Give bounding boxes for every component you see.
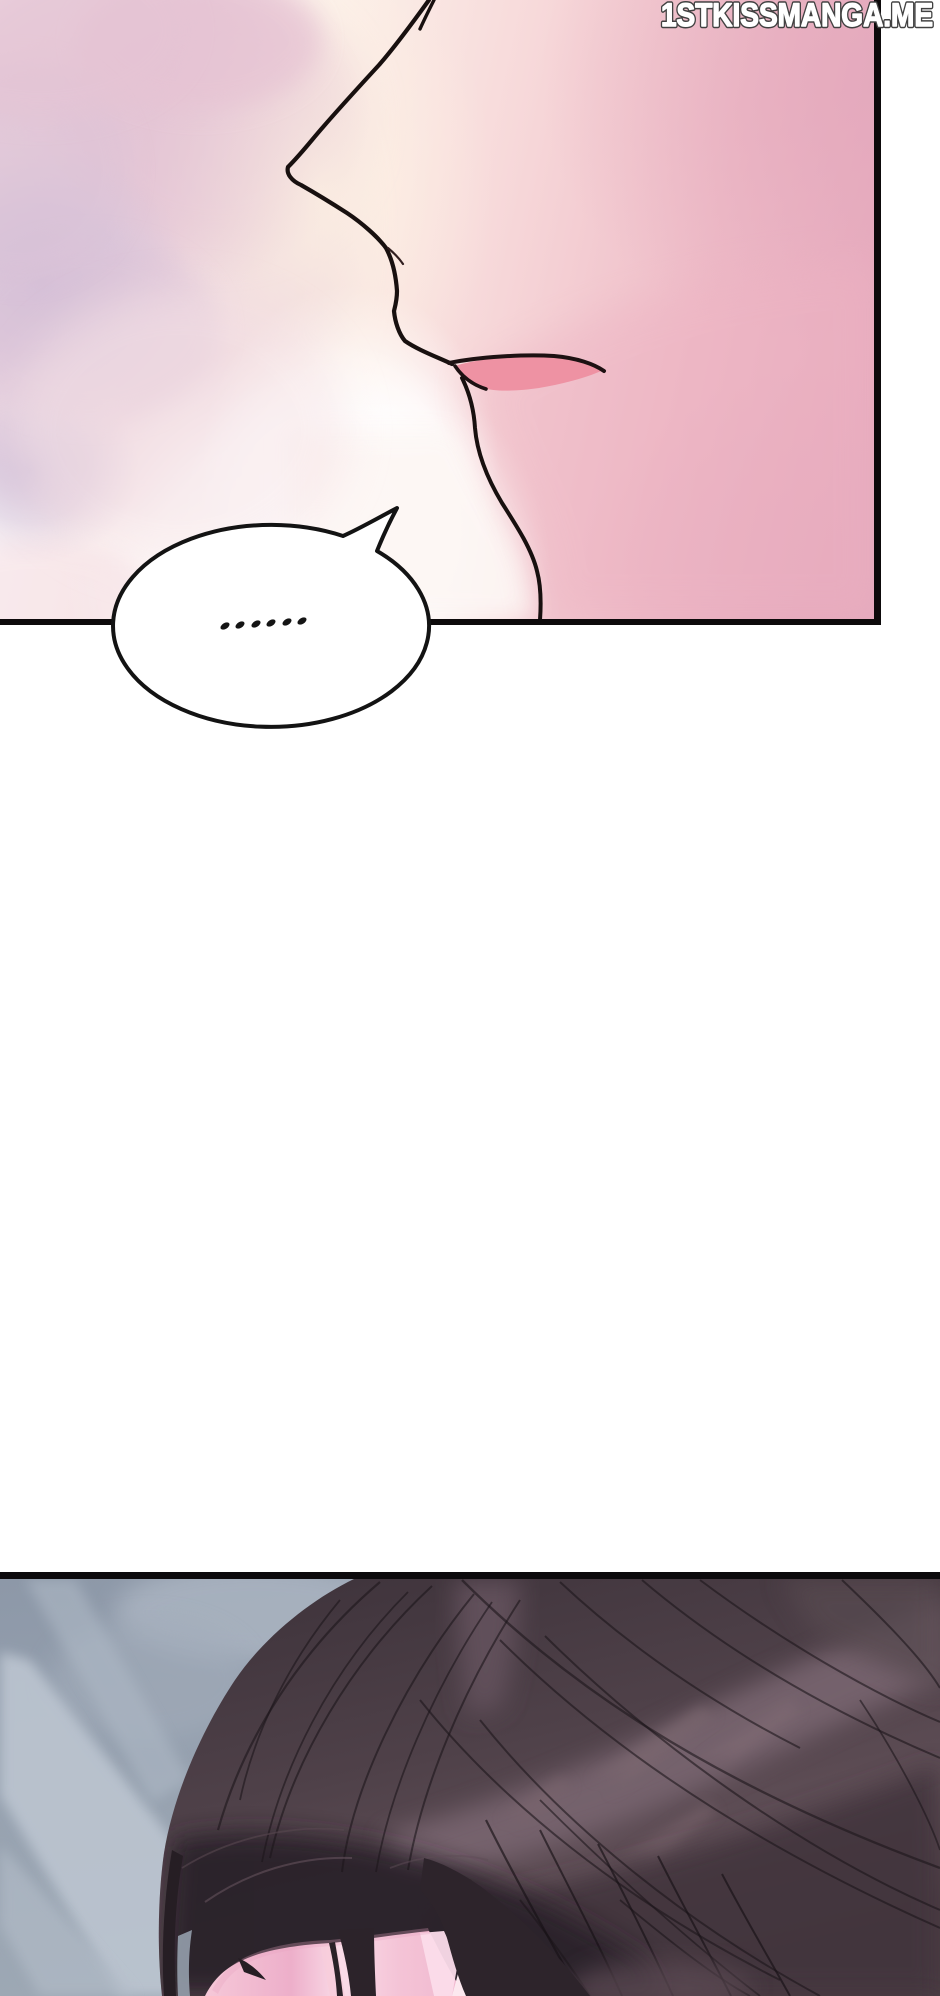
svg-text:1STKISSMANGA.ME: 1STKISSMANGA.ME xyxy=(661,0,933,33)
